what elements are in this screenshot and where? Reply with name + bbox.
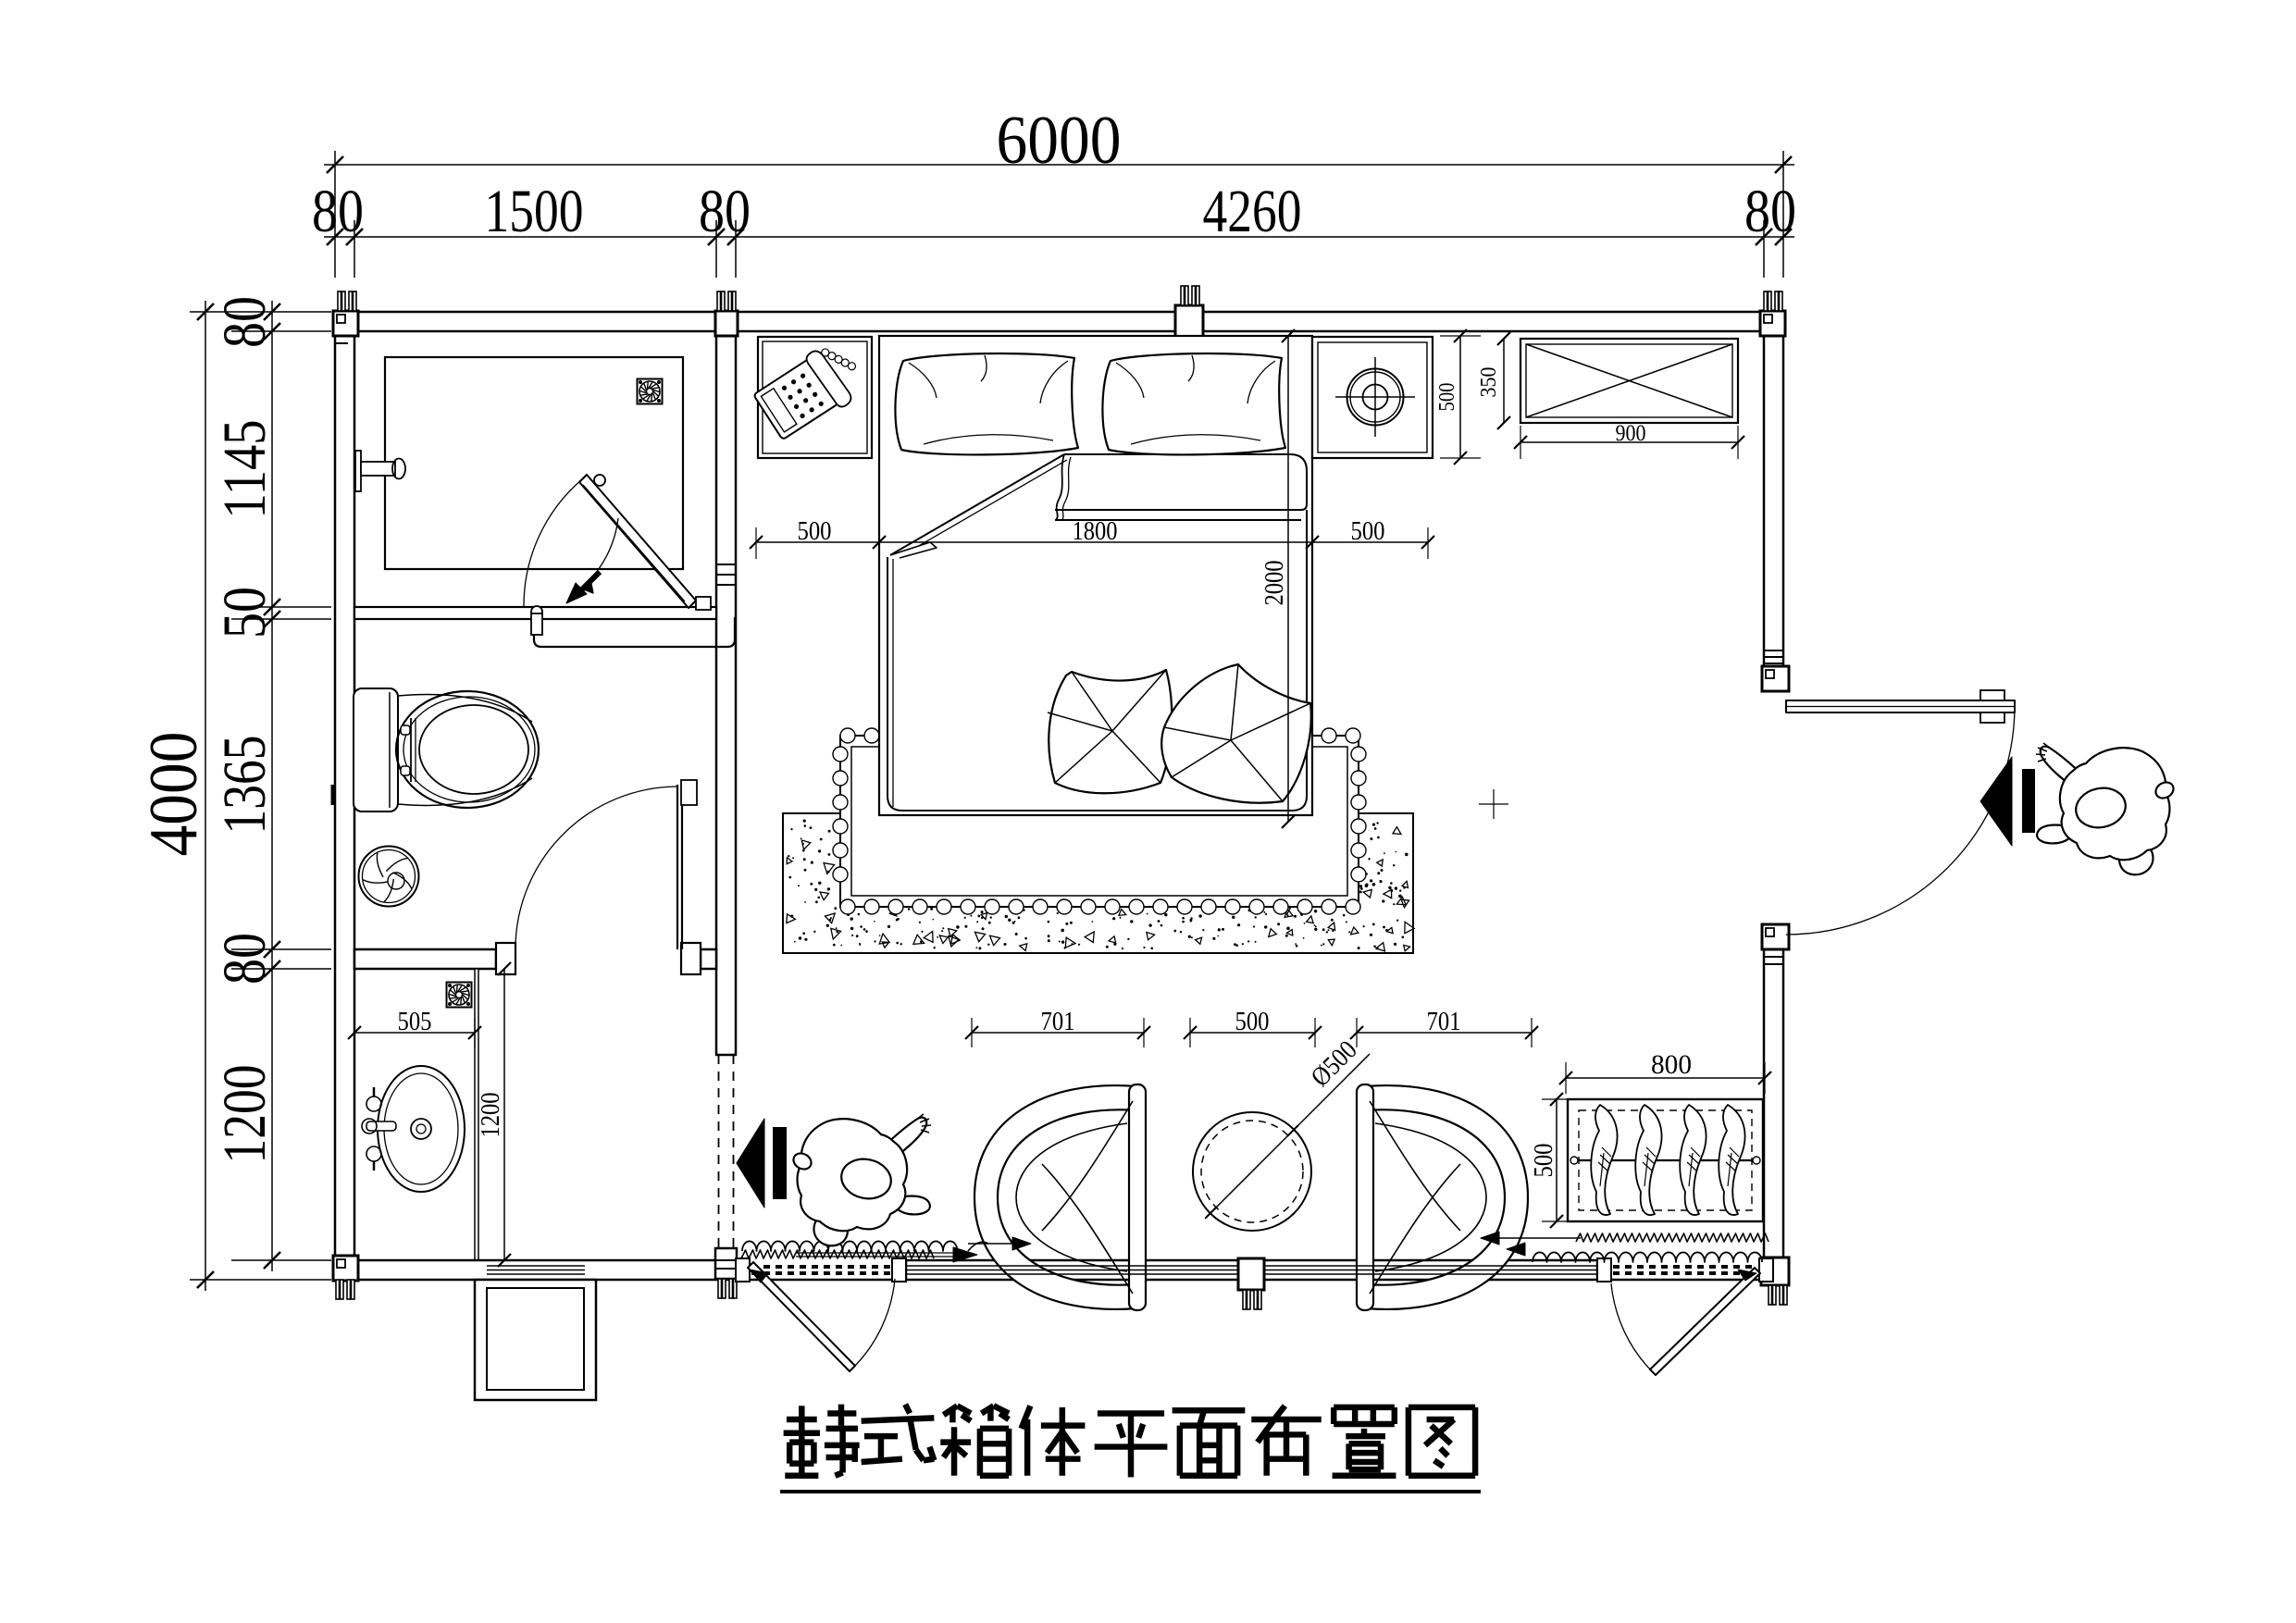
svg-text:800: 800 xyxy=(1651,1049,1692,1080)
svg-text:500: 500 xyxy=(1351,516,1385,546)
svg-text:80: 80 xyxy=(699,178,751,245)
svg-text:6000: 6000 xyxy=(997,103,1122,179)
svg-text:500: 500 xyxy=(1529,1144,1558,1178)
svg-text:1200: 1200 xyxy=(476,1093,505,1138)
svg-text:701: 701 xyxy=(1041,1007,1075,1036)
svg-text:2000: 2000 xyxy=(1260,561,1289,606)
svg-text:500: 500 xyxy=(1235,1007,1270,1036)
svg-text:900: 900 xyxy=(1616,421,1646,446)
svg-text:80: 80 xyxy=(211,933,279,985)
svg-text:4260: 4260 xyxy=(1203,178,1302,245)
svg-text:505: 505 xyxy=(398,1007,432,1036)
svg-text:1200: 1200 xyxy=(211,1065,279,1164)
svg-text:4000: 4000 xyxy=(136,732,212,857)
svg-text:80: 80 xyxy=(1744,178,1796,245)
svg-text:1145: 1145 xyxy=(211,420,279,519)
svg-text:80: 80 xyxy=(312,178,364,245)
svg-text:350: 350 xyxy=(1477,367,1501,398)
svg-text:1365: 1365 xyxy=(211,736,279,835)
svg-text:500: 500 xyxy=(1435,383,1459,412)
svg-text:1800: 1800 xyxy=(1073,516,1118,546)
svg-text:1500: 1500 xyxy=(485,178,584,245)
svg-text:500: 500 xyxy=(798,516,832,546)
svg-text:80: 80 xyxy=(211,296,279,348)
svg-text:701: 701 xyxy=(1427,1007,1461,1036)
svg-text:50: 50 xyxy=(211,587,279,638)
